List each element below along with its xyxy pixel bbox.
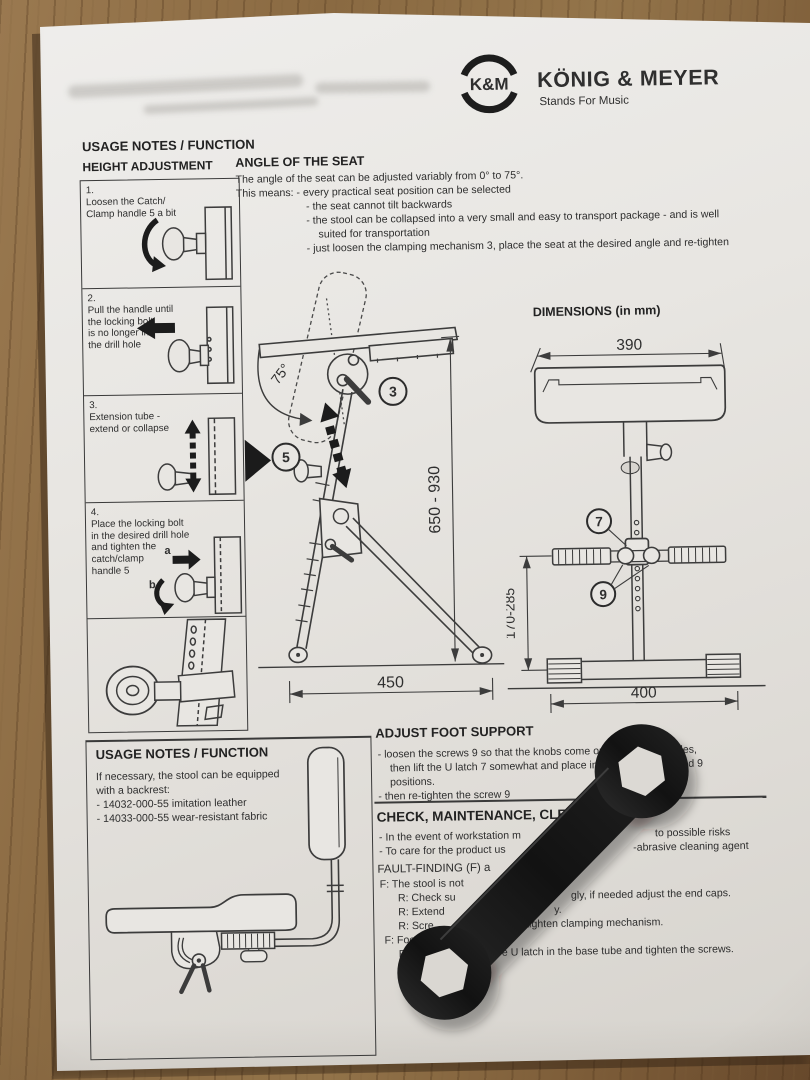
black-wrench: [0, 0, 810, 1080]
wrench-body: [378, 705, 708, 1039]
photo-of-instruction-sheet: K&M KÖNIG & MEYER Stands For Music USAGE…: [0, 0, 810, 1080]
